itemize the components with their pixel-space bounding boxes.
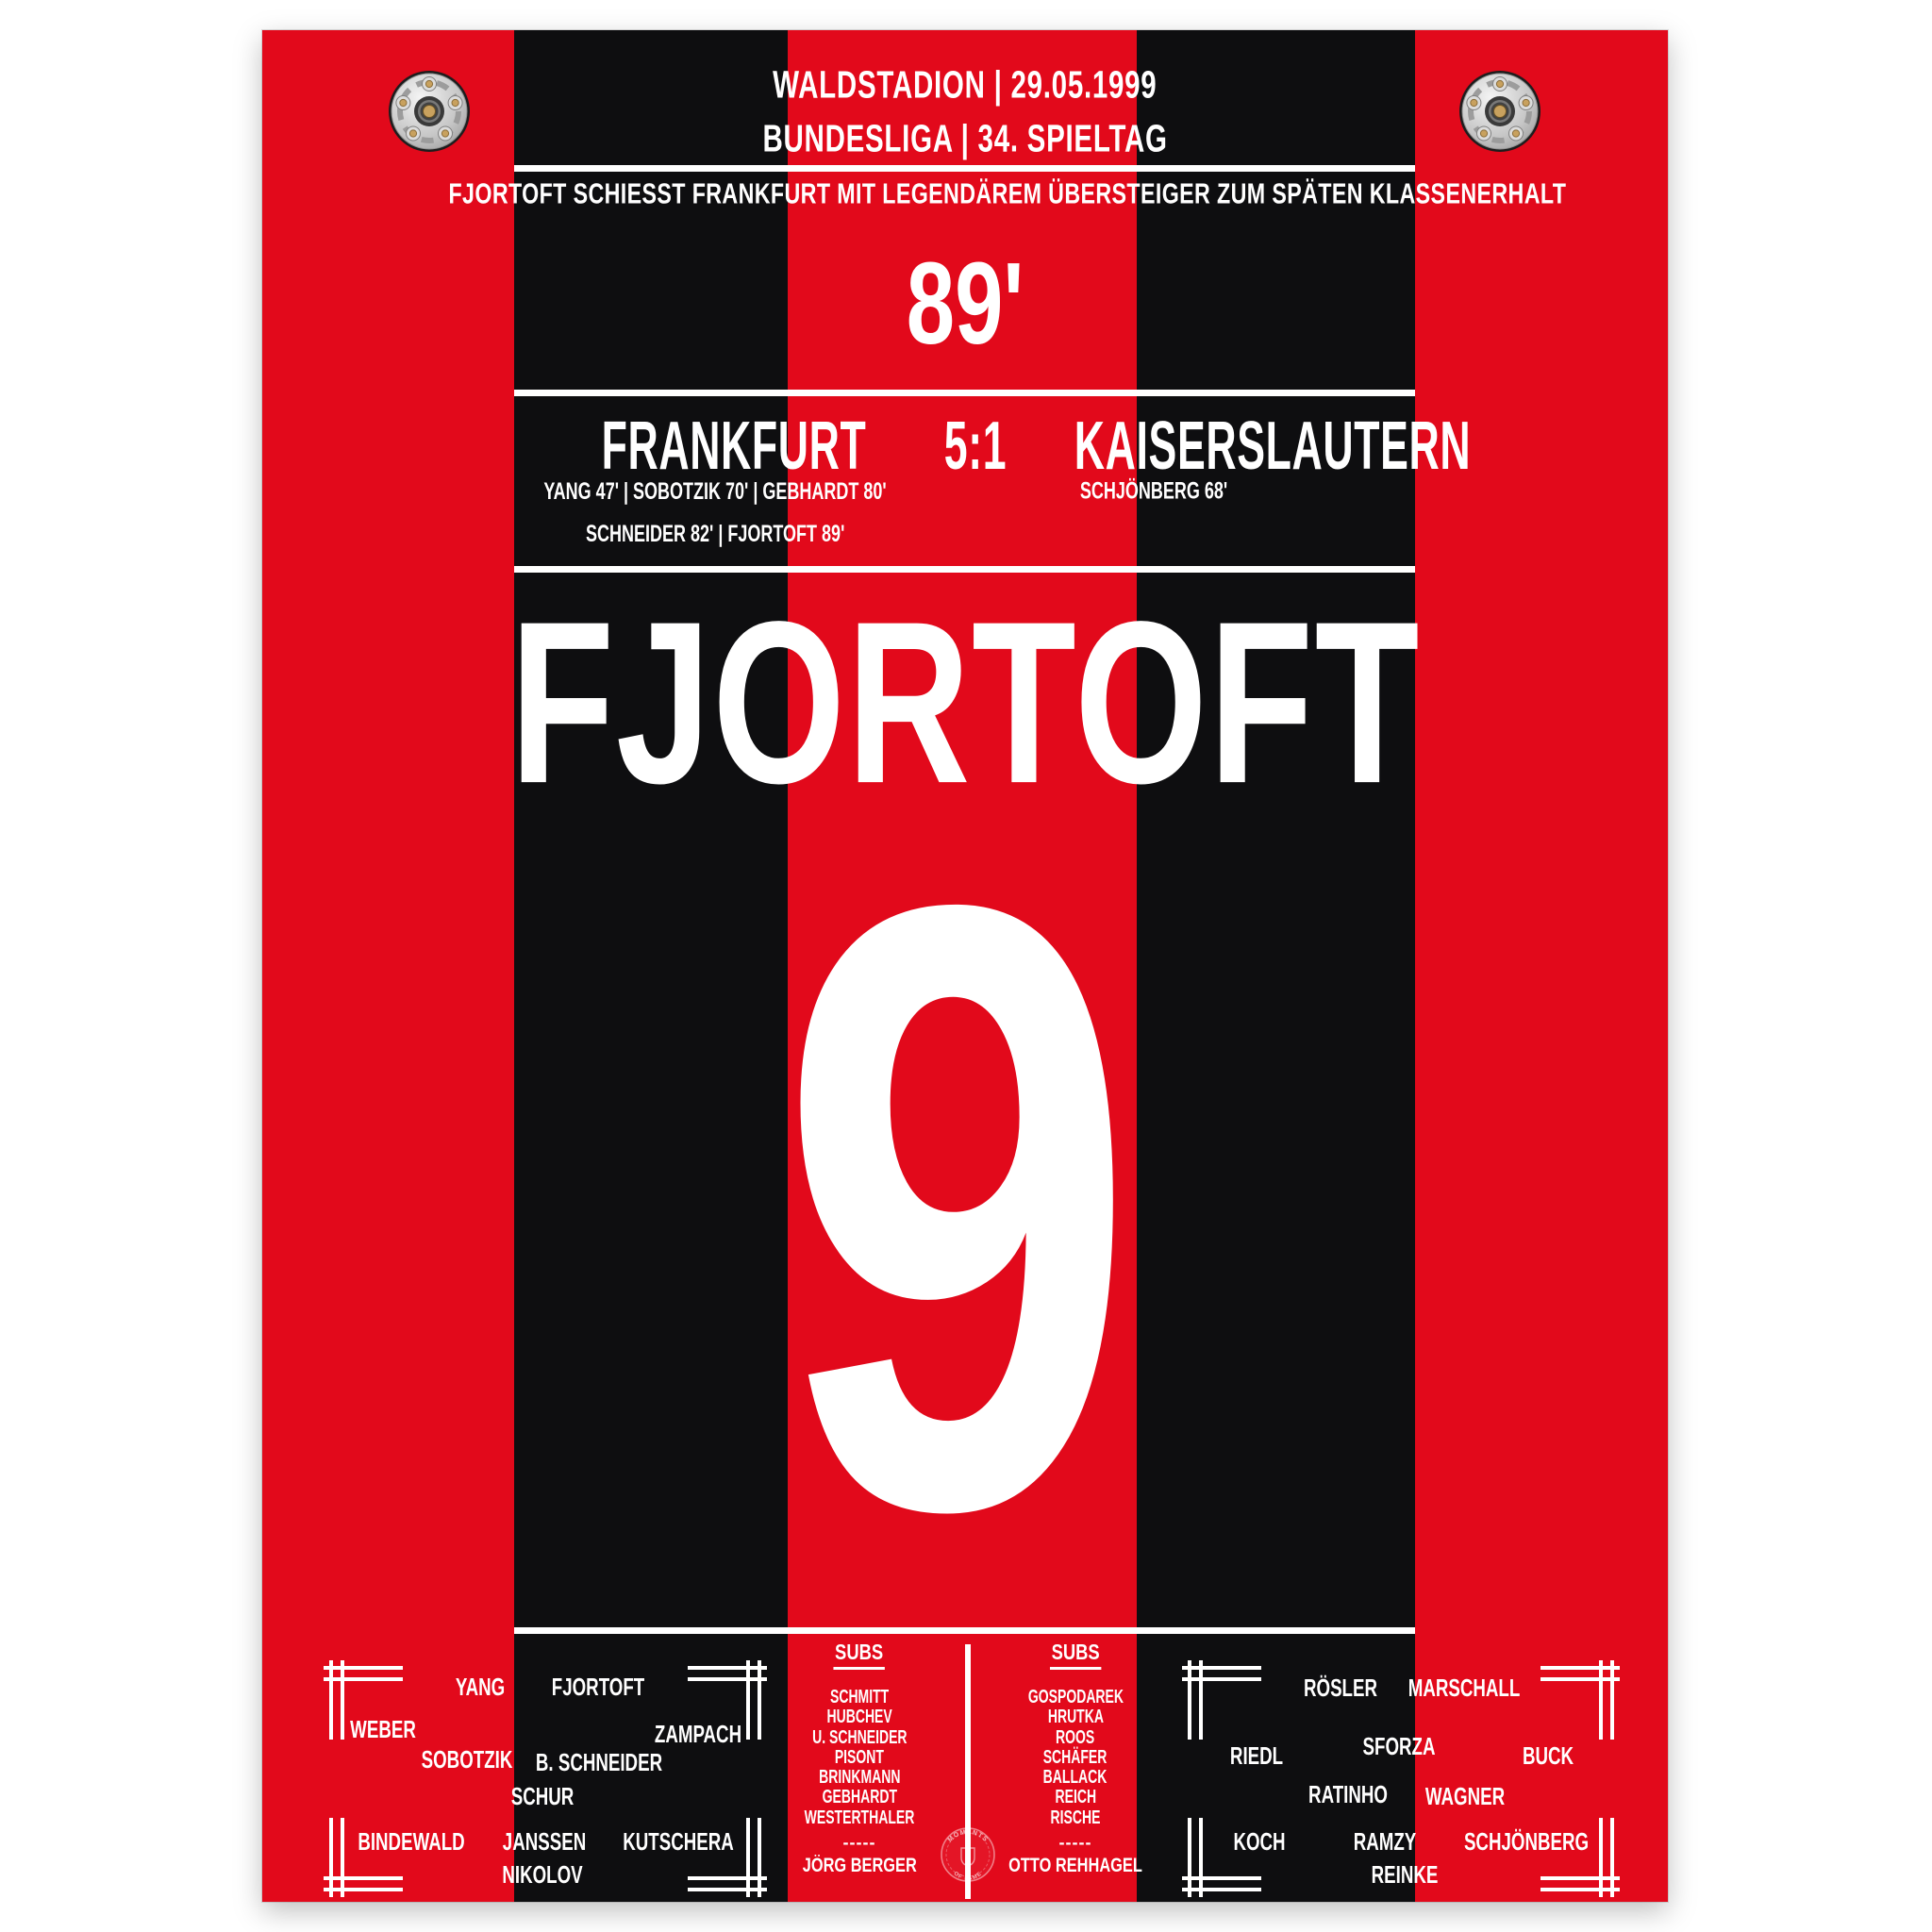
home-lineup-player: JANSSEN xyxy=(503,1829,586,1854)
home-subs-header: SUBS xyxy=(781,1641,939,1670)
away-sub-player: HRUTKA xyxy=(990,1707,1161,1727)
home-subs-separator: ----- xyxy=(781,1834,939,1851)
home-lineup-player: FJORTOFT xyxy=(552,1674,644,1699)
home-sub-player: WESTERTHALER xyxy=(781,1808,939,1828)
away-subs-column: SUBS GOSPODAREKHRUTKAROOSSCHÄFERBALLACKR… xyxy=(990,1641,1161,1876)
away-lineup-player: WAGNER xyxy=(1425,1784,1505,1808)
away-lineup-player: RAMZY xyxy=(1354,1829,1417,1854)
away-sub-player-label: SCHÄFER xyxy=(1043,1748,1108,1768)
away-lineup-player: BUCK xyxy=(1523,1743,1574,1768)
away-lineup-player: RATINHO xyxy=(1308,1782,1388,1807)
home-lineup-player: YANG xyxy=(456,1674,505,1699)
away-sub-player: SCHÄFER xyxy=(990,1748,1161,1768)
away-lineup-player: RÖSLER xyxy=(1304,1675,1377,1700)
home-lineup-player: WEBER xyxy=(350,1717,416,1741)
away-team-name: KAISERSLAUTERN xyxy=(953,412,1592,480)
away-sub-player: GOSPODAREK xyxy=(990,1688,1161,1707)
home-scorers-line1-label: YANG 47' | SOBOTZIK 70' | GEBHARDT 80' xyxy=(543,471,886,513)
away-lineup-player: SFORZA xyxy=(1363,1734,1436,1758)
home-subs-column: SUBS SCHMITTHUBCHEVU. SCHNEIDERPISONTBRI… xyxy=(781,1641,939,1876)
home-sub-player-label: WESTERTHALER xyxy=(805,1808,915,1828)
away-scorers-label: SCHJÖNBERG 68' xyxy=(1080,471,1227,513)
home-lineup-player: B. SCHNEIDER xyxy=(536,1750,662,1774)
competition-text: BUNDESLIGA | 34. SPIELTAG xyxy=(262,120,1668,158)
away-lineup-player: RIEDL xyxy=(1230,1743,1283,1768)
tagline-label: FJORTOFT SCHIESST FRANKFURT MIT LEGENDÄR… xyxy=(448,179,1566,208)
home-scorers-line2-label: SCHNEIDER 82' | FJORTOFT 89' xyxy=(586,513,844,556)
home-lineup-player: KUTSCHERA xyxy=(623,1829,734,1854)
away-sub-player: ROOS xyxy=(990,1728,1161,1748)
away-subs-separator: ----- xyxy=(990,1834,1161,1851)
away-lineup-player: REINKE xyxy=(1372,1862,1439,1887)
away-sub-player-label: GOSPODAREK xyxy=(1027,1688,1123,1707)
away-scorers: SCHJÖNBERG 68' xyxy=(1051,471,1256,513)
venue-date-text: WALDSTADION | 29.05.1999 xyxy=(262,66,1668,105)
competition-label: BUNDESLIGA | 34. SPIELTAG xyxy=(762,120,1167,158)
minute-text: 89' xyxy=(262,246,1668,362)
home-subs-title: SUBS xyxy=(834,1641,885,1670)
page-background: { "colors": { "red": "#e2091b", "black":… xyxy=(0,0,1932,1932)
home-scorers: YANG 47' | SOBOTZIK 70' | GEBHARDT 80' S… xyxy=(477,471,954,556)
home-sub-player: PISONT xyxy=(781,1748,939,1768)
home-lineup-player: SCHUR xyxy=(511,1784,575,1808)
tagline-text: FJORTOFT SCHIESST FRANKFURT MIT LEGENDÄR… xyxy=(262,179,1668,208)
away-sub-player-label: HRUTKA xyxy=(1047,1707,1103,1727)
home-sub-player-label: BRINKMANN xyxy=(819,1768,900,1788)
away-sub-player-label: ROOS xyxy=(1056,1728,1094,1748)
divider-line-under-minute xyxy=(514,390,1415,396)
home-manager-label: JÖRG BERGER xyxy=(802,1856,916,1876)
home-subs-list: SCHMITTHUBCHEVU. SCHNEIDERPISONTBRINKMAN… xyxy=(781,1688,939,1828)
home-sub-player: BRINKMANN xyxy=(781,1768,939,1788)
home-lineup-player: SOBOTZIK xyxy=(422,1747,513,1772)
match-poster: WALDSTADION | 29.05.1999 BUNDESLIGA | 34… xyxy=(262,30,1668,1902)
home-sub-player-label: HUBCHEV xyxy=(826,1707,891,1727)
away-sub-player-label: RISCHE xyxy=(1051,1808,1101,1828)
away-sub-player: RISCHE xyxy=(990,1808,1161,1828)
home-lineup-player: ZAMPACH xyxy=(655,1722,741,1746)
away-lineup-player: MARSCHALL xyxy=(1408,1675,1521,1700)
home-sub-player-label: SCHMITT xyxy=(830,1688,889,1707)
divider-line-above-lineups xyxy=(514,1627,1415,1634)
pitch-corner-away-top-left xyxy=(1182,1660,1261,1740)
home-scorers-line2: SCHNEIDER 82' | FJORTOFT 89' xyxy=(477,513,954,556)
home-lineup-player: BINDEWALD xyxy=(358,1829,464,1854)
away-sub-player: BALLACK xyxy=(990,1768,1161,1788)
home-sub-player: U. SCHNEIDER xyxy=(781,1728,939,1748)
away-sub-player-label: BALLACK xyxy=(1043,1768,1108,1788)
away-manager: OTTO REHHAGEL xyxy=(990,1856,1161,1876)
hero-shirt-number-label: 9 xyxy=(778,778,1137,1639)
home-sub-player: HUBCHEV xyxy=(781,1707,939,1727)
home-sub-player: GEBHARDT xyxy=(781,1788,939,1807)
venue-date-label: WALDSTADION | 29.05.1999 xyxy=(773,66,1157,105)
divider-line-top xyxy=(514,165,1415,172)
home-sub-player-label: PISONT xyxy=(835,1748,884,1768)
home-lineup-player: NIKOLOV xyxy=(502,1862,582,1887)
away-subs-list: GOSPODAREKHRUTKAROOSSCHÄFERBALLACKREICHR… xyxy=(990,1688,1161,1828)
away-manager-label: OTTO REHHAGEL xyxy=(1008,1856,1142,1876)
hero-shirt-number: 9 xyxy=(718,778,1196,1639)
home-sub-player: SCHMITT xyxy=(781,1688,939,1707)
home-sub-player-label: U. SCHNEIDER xyxy=(812,1728,907,1748)
away-subs-title: SUBS xyxy=(1050,1641,1101,1670)
away-lineup-player: KOCH xyxy=(1233,1829,1285,1854)
minute-label: 89' xyxy=(907,246,1024,362)
pitch-corner-away-top-right xyxy=(1541,1660,1620,1740)
away-subs-header: SUBS xyxy=(990,1641,1161,1670)
home-scorers-line1: YANG 47' | SOBOTZIK 70' | GEBHARDT 80' xyxy=(477,471,954,513)
divider-line-under-score xyxy=(514,566,1415,573)
away-lineup-player: SCHJÖNBERG xyxy=(1464,1829,1589,1854)
home-manager: JÖRG BERGER xyxy=(781,1856,939,1876)
away-sub-player: REICH xyxy=(990,1788,1161,1807)
away-sub-player-label: REICH xyxy=(1055,1788,1096,1807)
home-sub-player-label: GEBHARDT xyxy=(822,1788,896,1807)
